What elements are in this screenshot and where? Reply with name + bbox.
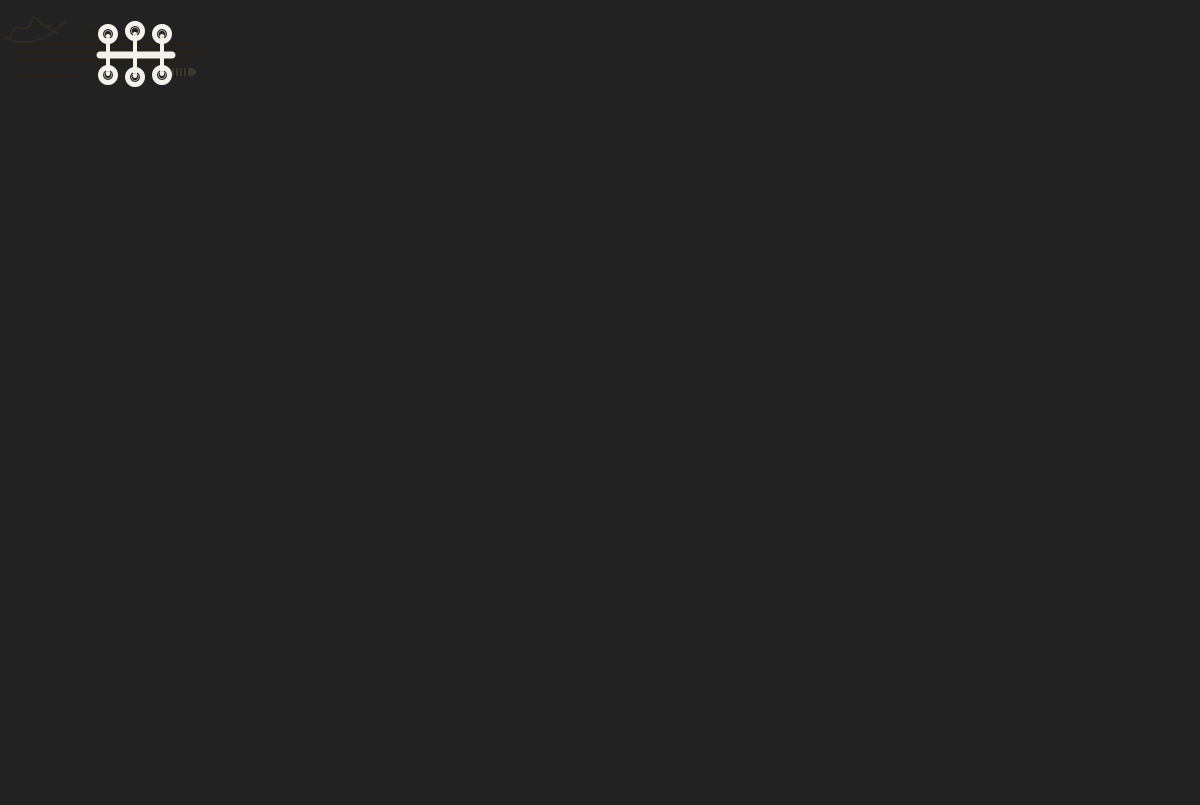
polycap-runner — [100, 24, 172, 85]
photo-scene: FIREBALL CHECKED BY 2080L 1. EXHAUST PIP… — [0, 0, 1200, 805]
signature-icon — [0, 6, 70, 52]
floor-seam — [0, 222, 1200, 461]
floor-seam — [0, 450, 1200, 596]
